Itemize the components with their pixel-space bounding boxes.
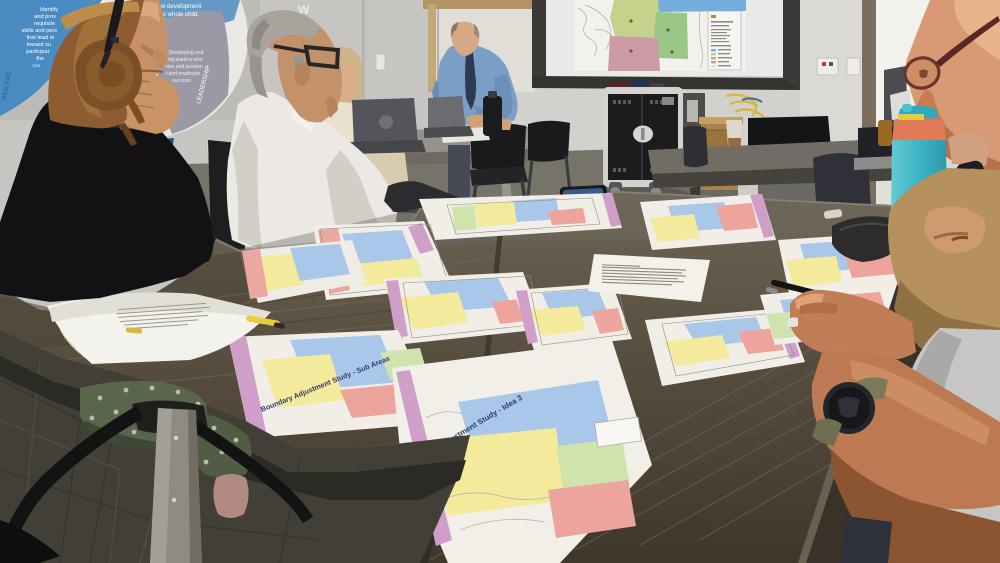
svg-text:t and employee: t and employee (166, 71, 200, 77)
svg-text:requisite: requisite (34, 21, 55, 27)
svg-text:success.: success. (172, 78, 191, 84)
svg-text:and prov: and prov (34, 14, 56, 20)
svg-text:the: the (36, 56, 44, 62)
svg-text:participat: participat (26, 49, 49, 55)
svg-text:Developing and: Developing and (169, 50, 204, 56)
svg-text:ing leaders who: ing leaders who (167, 57, 202, 63)
svg-text:that lead st: that lead st (27, 35, 55, 41)
svg-text:toward su: toward su (27, 42, 51, 48)
svg-text:skills and pers: skills and pers (22, 28, 58, 34)
svg-text:Identify: Identify (40, 7, 58, 13)
svg-text:Cre: Cre (33, 63, 41, 68)
svg-text:sion and passion: sion and passion (165, 64, 203, 70)
